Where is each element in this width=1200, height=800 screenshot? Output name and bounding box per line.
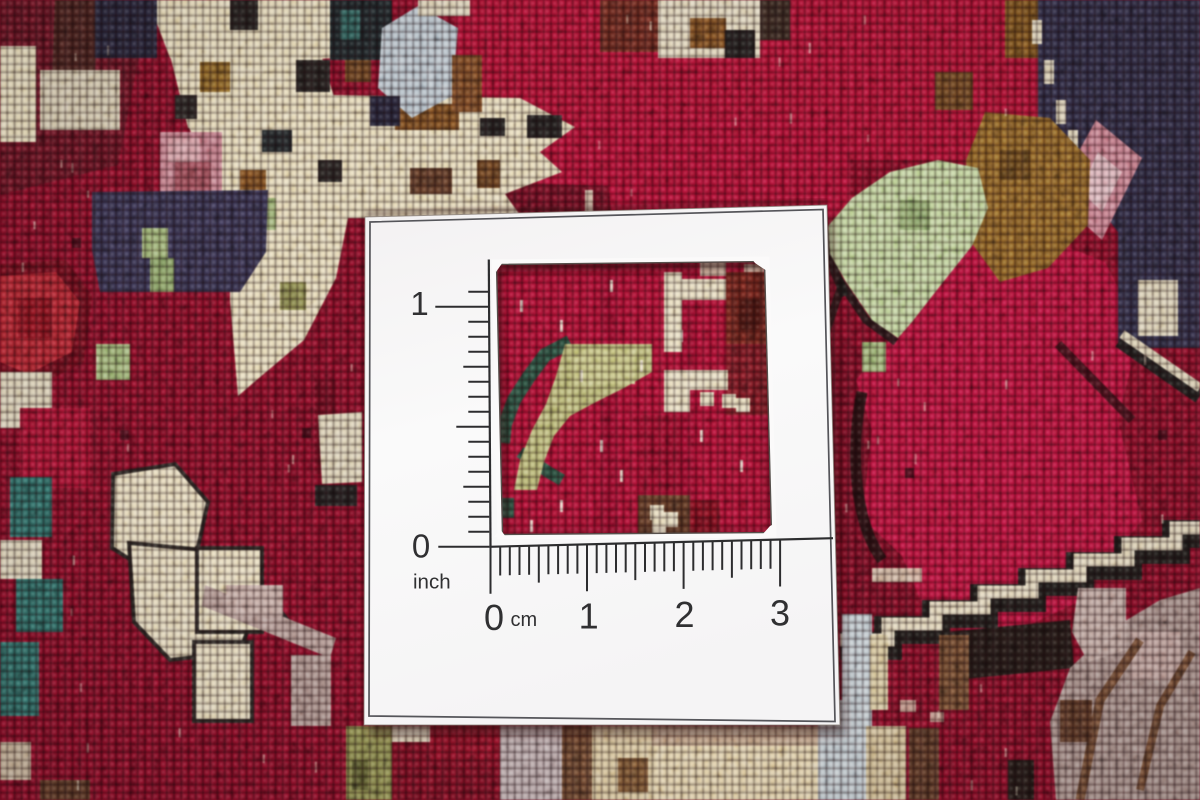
svg-text:cm: cm (511, 609, 538, 631)
svg-text:0: 0 (412, 528, 430, 565)
svg-text:0: 0 (484, 597, 504, 638)
svg-text:inch: inch (413, 571, 451, 594)
svg-text:2: 2 (674, 594, 694, 635)
svg-text:1: 1 (410, 285, 428, 322)
svg-text:1: 1 (579, 596, 599, 637)
svg-text:3: 3 (770, 593, 790, 634)
